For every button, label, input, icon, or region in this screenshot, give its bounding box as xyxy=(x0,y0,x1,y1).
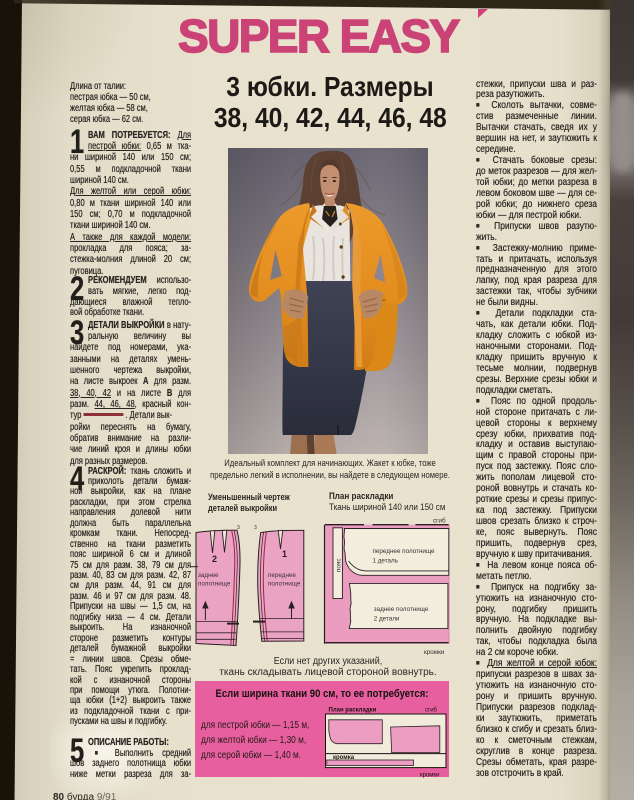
svg-text:переднее полотнище: переднее полотнище xyxy=(373,548,436,555)
svg-text:1: 1 xyxy=(282,549,287,559)
svg-text:пояс: пояс xyxy=(336,559,343,572)
svg-text:полотнище: полотнище xyxy=(268,581,301,588)
svg-text:заднее: заднее xyxy=(198,572,219,579)
svg-text:сгиб: сгиб xyxy=(433,517,446,525)
svg-text:переднее: переднее xyxy=(268,572,296,579)
svg-text:заднее полотнище: заднее полотнище xyxy=(374,606,429,613)
svg-text:полотнище: полотнище xyxy=(198,581,231,588)
svg-text:кромки: кромки xyxy=(420,773,439,779)
svg-text:2: 2 xyxy=(212,554,217,564)
svg-text:План раскладки: План раскладки xyxy=(329,708,377,714)
svg-text:1 деталь: 1 деталь xyxy=(373,558,399,565)
svg-text:3: 3 xyxy=(237,525,240,531)
svg-text:3: 3 xyxy=(254,525,257,531)
svg-text:2 детали: 2 детали xyxy=(374,616,400,623)
svg-text:сгиб: сгиб xyxy=(425,708,438,714)
svg-text:кромки: кромки xyxy=(424,649,445,655)
